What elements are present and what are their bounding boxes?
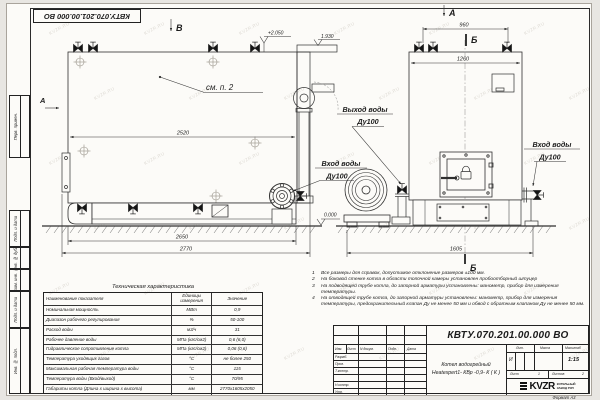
param-unit: °С xyxy=(172,375,213,384)
table-row: Температура воды (Вход/выход) °С 70/95 xyxy=(44,375,262,385)
corner-designation-box: КВТУ.070.201.00.000 ВО xyxy=(33,9,141,23)
table-row: Максимальная рабочая температура воды °С… xyxy=(44,365,262,375)
param-unit: % xyxy=(172,316,213,325)
margin-box-podp-data-2: Подп. и дата xyxy=(9,291,30,328)
base-skids xyxy=(68,203,296,224)
margin-label: Перв. примен. xyxy=(13,113,18,140)
param-value: 2770х1605х2050 xyxy=(212,385,262,395)
col-list: Лист xyxy=(347,347,356,351)
param-value: 0,06 (0,6) xyxy=(212,345,262,354)
doc-designation: КВТУ.070.201.00.000 ВО xyxy=(426,326,590,344)
kvzr-logo-mark-icon xyxy=(520,382,527,391)
table-row: Температура уходящих газов °С не более 2… xyxy=(44,355,262,365)
table-row: Рабочее давление воды МПа (кгс/см2) 0,6 … xyxy=(44,336,262,346)
param-value: не более 250 xyxy=(212,355,262,364)
smoke-duct xyxy=(297,45,337,52)
table-row: Гидравлическое сопротивление котла МПа (… xyxy=(44,345,262,355)
param-unit: мм xyxy=(172,385,213,395)
scale-value: 1:15 xyxy=(568,357,579,363)
see-note-label: см. п. 2 xyxy=(206,83,234,92)
param-unit: МВт xyxy=(172,306,213,315)
param-unit: °С xyxy=(172,365,213,374)
section-b-top: Б xyxy=(471,35,478,45)
note-number: 1 xyxy=(312,271,321,277)
view-a-letter: А xyxy=(448,8,456,18)
engineering-drawing-page: KVZR.RU xyxy=(0,0,600,400)
col-header: Единицы измерения xyxy=(172,293,213,305)
logo-sub-line2: ЗАВОД РЭП xyxy=(557,387,576,390)
inlet-pipe xyxy=(522,188,543,227)
param-name: Максимальная рабочая температура воды xyxy=(44,365,172,374)
margin-label: Подп. и дата xyxy=(13,297,18,323)
row-prov: Пров. xyxy=(335,362,344,366)
ground-hatch-right xyxy=(338,226,551,233)
note-item: 4 На отводящей трубе котла, до запорной … xyxy=(312,296,589,308)
margin-label: Инв. № подл. xyxy=(13,348,18,374)
dim-2650: 2650 xyxy=(175,235,189,241)
col-header: Значение xyxy=(212,293,262,305)
param-name: Гидравлическое сопротивление котла xyxy=(44,345,172,354)
note-text: На боковой стенке котла в области топочн… xyxy=(321,277,589,283)
blower-fan xyxy=(344,169,390,227)
col-header: Наименование показателя xyxy=(44,293,172,305)
param-value: 31 xyxy=(212,326,262,335)
table-row: Диапазон рабочего регулирования % 50-100 xyxy=(44,316,262,326)
note-number: 2 xyxy=(312,277,321,283)
safety-valves-front xyxy=(415,42,512,52)
param-name: Температура воды (Вход/выход) xyxy=(44,375,172,384)
inlet-label-side: Вход воды xyxy=(322,159,362,168)
inlet-dn-side: Ду100 xyxy=(325,172,347,181)
table-row: Расход воды м3/ч 31 xyxy=(44,326,262,336)
view-b-letter: В xyxy=(176,23,183,33)
front-view xyxy=(336,40,556,258)
outlet-pipe xyxy=(392,184,410,224)
param-value: 115 xyxy=(212,365,262,374)
outlet-label: Выход воды xyxy=(342,105,388,114)
param-unit: МПа (кгс/см2) xyxy=(172,336,213,345)
smoke-fan xyxy=(294,82,339,203)
elev-fan: 1.930 xyxy=(321,34,334,40)
margin-label: Подп. и дата xyxy=(13,216,18,242)
param-name: Диапазон рабочего регулирования xyxy=(44,316,172,325)
pedestal xyxy=(413,200,521,225)
param-unit: °С xyxy=(172,355,213,364)
dim-2770: 2770 xyxy=(179,247,193,253)
row-nkontr: Н.контр. xyxy=(335,383,349,387)
water-inlet-flange xyxy=(270,184,295,225)
col-data: Дата xyxy=(407,347,416,351)
col-ndokum: N докум. xyxy=(360,347,374,351)
inlet-dn-front: Ду100 xyxy=(538,153,560,162)
dim-960: 960 xyxy=(459,23,469,29)
kvzr-logo-text: KVZR xyxy=(529,381,554,392)
margin-box-inv-podl: Инв. № подл. xyxy=(9,328,30,394)
dim-2520: 2520 xyxy=(176,131,190,137)
note-number: 3 xyxy=(312,284,321,296)
note-text: На отводящей трубе котла, до запорной ар… xyxy=(321,296,589,308)
margin-box-inv-dubl: Инв. № дубл. xyxy=(9,247,30,269)
row-tkontr: Т.контр. xyxy=(335,369,349,373)
safety-valves-side xyxy=(74,42,307,214)
row-utv: Утв. xyxy=(335,390,343,394)
dim-1260: 1260 xyxy=(457,57,470,63)
sheet-label: Лист xyxy=(510,372,519,376)
param-name: Номинальная мощность xyxy=(44,306,172,315)
note-text: На подводящей трубе котла, до запорной а… xyxy=(321,284,589,296)
param-value: 70/95 xyxy=(212,375,262,384)
param-name: Габариты котла (Длина х ширина х высота) xyxy=(44,385,172,395)
lit-value: И xyxy=(509,357,513,363)
mass-label: Масса xyxy=(540,346,550,350)
table-row: Габариты котла (Длина х ширина х высота)… xyxy=(44,385,262,395)
param-value: 0,6 (6,0) xyxy=(212,336,262,345)
tech-table-header: Наименование показателя Единицы измерени… xyxy=(44,293,262,306)
scale-label: Масштаб xyxy=(565,346,581,350)
elev-top: +2.050 xyxy=(268,31,284,37)
side-fitting xyxy=(62,153,70,192)
sheets-label: Листов xyxy=(552,372,564,376)
product-name-line1: Котел водогрейный xyxy=(441,362,490,370)
param-unit: МПа (кгс/см2) xyxy=(172,345,213,354)
col-podp: Подп. xyxy=(388,347,397,351)
sheet-number: 1 xyxy=(538,372,540,376)
note-item: 1 Все размеры для справок, допустимое от… xyxy=(312,271,589,277)
margin-box-vzam-inv: Взам. инв. № xyxy=(9,269,30,291)
note-item: 2 На боковой стенке котла в области топо… xyxy=(312,277,589,283)
format-label: Формат А3 xyxy=(538,395,590,400)
tech-table-title: Техническая характеристика xyxy=(43,284,263,290)
boiler-body-side xyxy=(68,52,297,203)
elev-zero: 0.000 xyxy=(324,213,337,219)
furnace-door xyxy=(440,152,493,197)
sheets-number: 2 xyxy=(582,372,584,376)
product-name-line2: Heatexpert1- КВр -0,9- К ( К ) xyxy=(432,370,500,378)
param-name: Температура уходящих газов xyxy=(44,355,172,364)
manufacturer-logo: KVZR КОТЕЛЬНЫЙ ЗАВОД РЭП xyxy=(506,378,590,395)
corner-designation: КВТУ.070.201.00.000 ВО xyxy=(44,12,130,21)
param-value: 0,9 xyxy=(212,306,262,315)
margin-box-perv-primen: Перв. примен. xyxy=(9,95,30,158)
tech-table: Наименование показателя Единицы измерени… xyxy=(43,292,263,394)
outlet-dn: Ду100 xyxy=(356,117,378,126)
product-name: Котел водогрейный Heatexpert1- КВр -0,9-… xyxy=(426,344,506,395)
dim-1605: 1605 xyxy=(450,247,463,253)
col-izm: Изм. xyxy=(335,347,342,351)
param-name: Расход воды xyxy=(44,326,172,335)
side-view xyxy=(42,42,338,233)
row-razrab: Разраб. xyxy=(335,355,347,359)
notes-list: 1 Все размеры для справок, допустимое от… xyxy=(312,271,589,308)
note-number: 4 xyxy=(312,296,321,308)
margin-label: Инв. № дубл. xyxy=(13,248,18,268)
table-row: Номинальная мощность МВт 0,9 xyxy=(44,306,262,316)
control-panel xyxy=(492,74,514,92)
margin-box-podp-data-1: Подп. и дата xyxy=(9,210,30,247)
note-item: 3 На подводящей трубе котла, до запорной… xyxy=(312,284,589,296)
margin-label: Взам. инв. № xyxy=(13,270,18,290)
view-a-side-letter: А xyxy=(39,96,45,105)
param-value: 50-100 xyxy=(212,316,262,325)
title-block: КВТУ.070.201.00.000 ВО Изм. Лист N докум… xyxy=(333,325,589,394)
note-text: Все размеры для справок, допустимое откл… xyxy=(321,271,589,277)
ground-hatch-left xyxy=(46,226,315,233)
lit-label: Лит. xyxy=(516,346,524,350)
param-name: Рабочее давление воды xyxy=(44,336,172,345)
param-unit: м3/ч xyxy=(172,326,213,335)
inlet-label-front: Вход воды xyxy=(533,140,573,149)
